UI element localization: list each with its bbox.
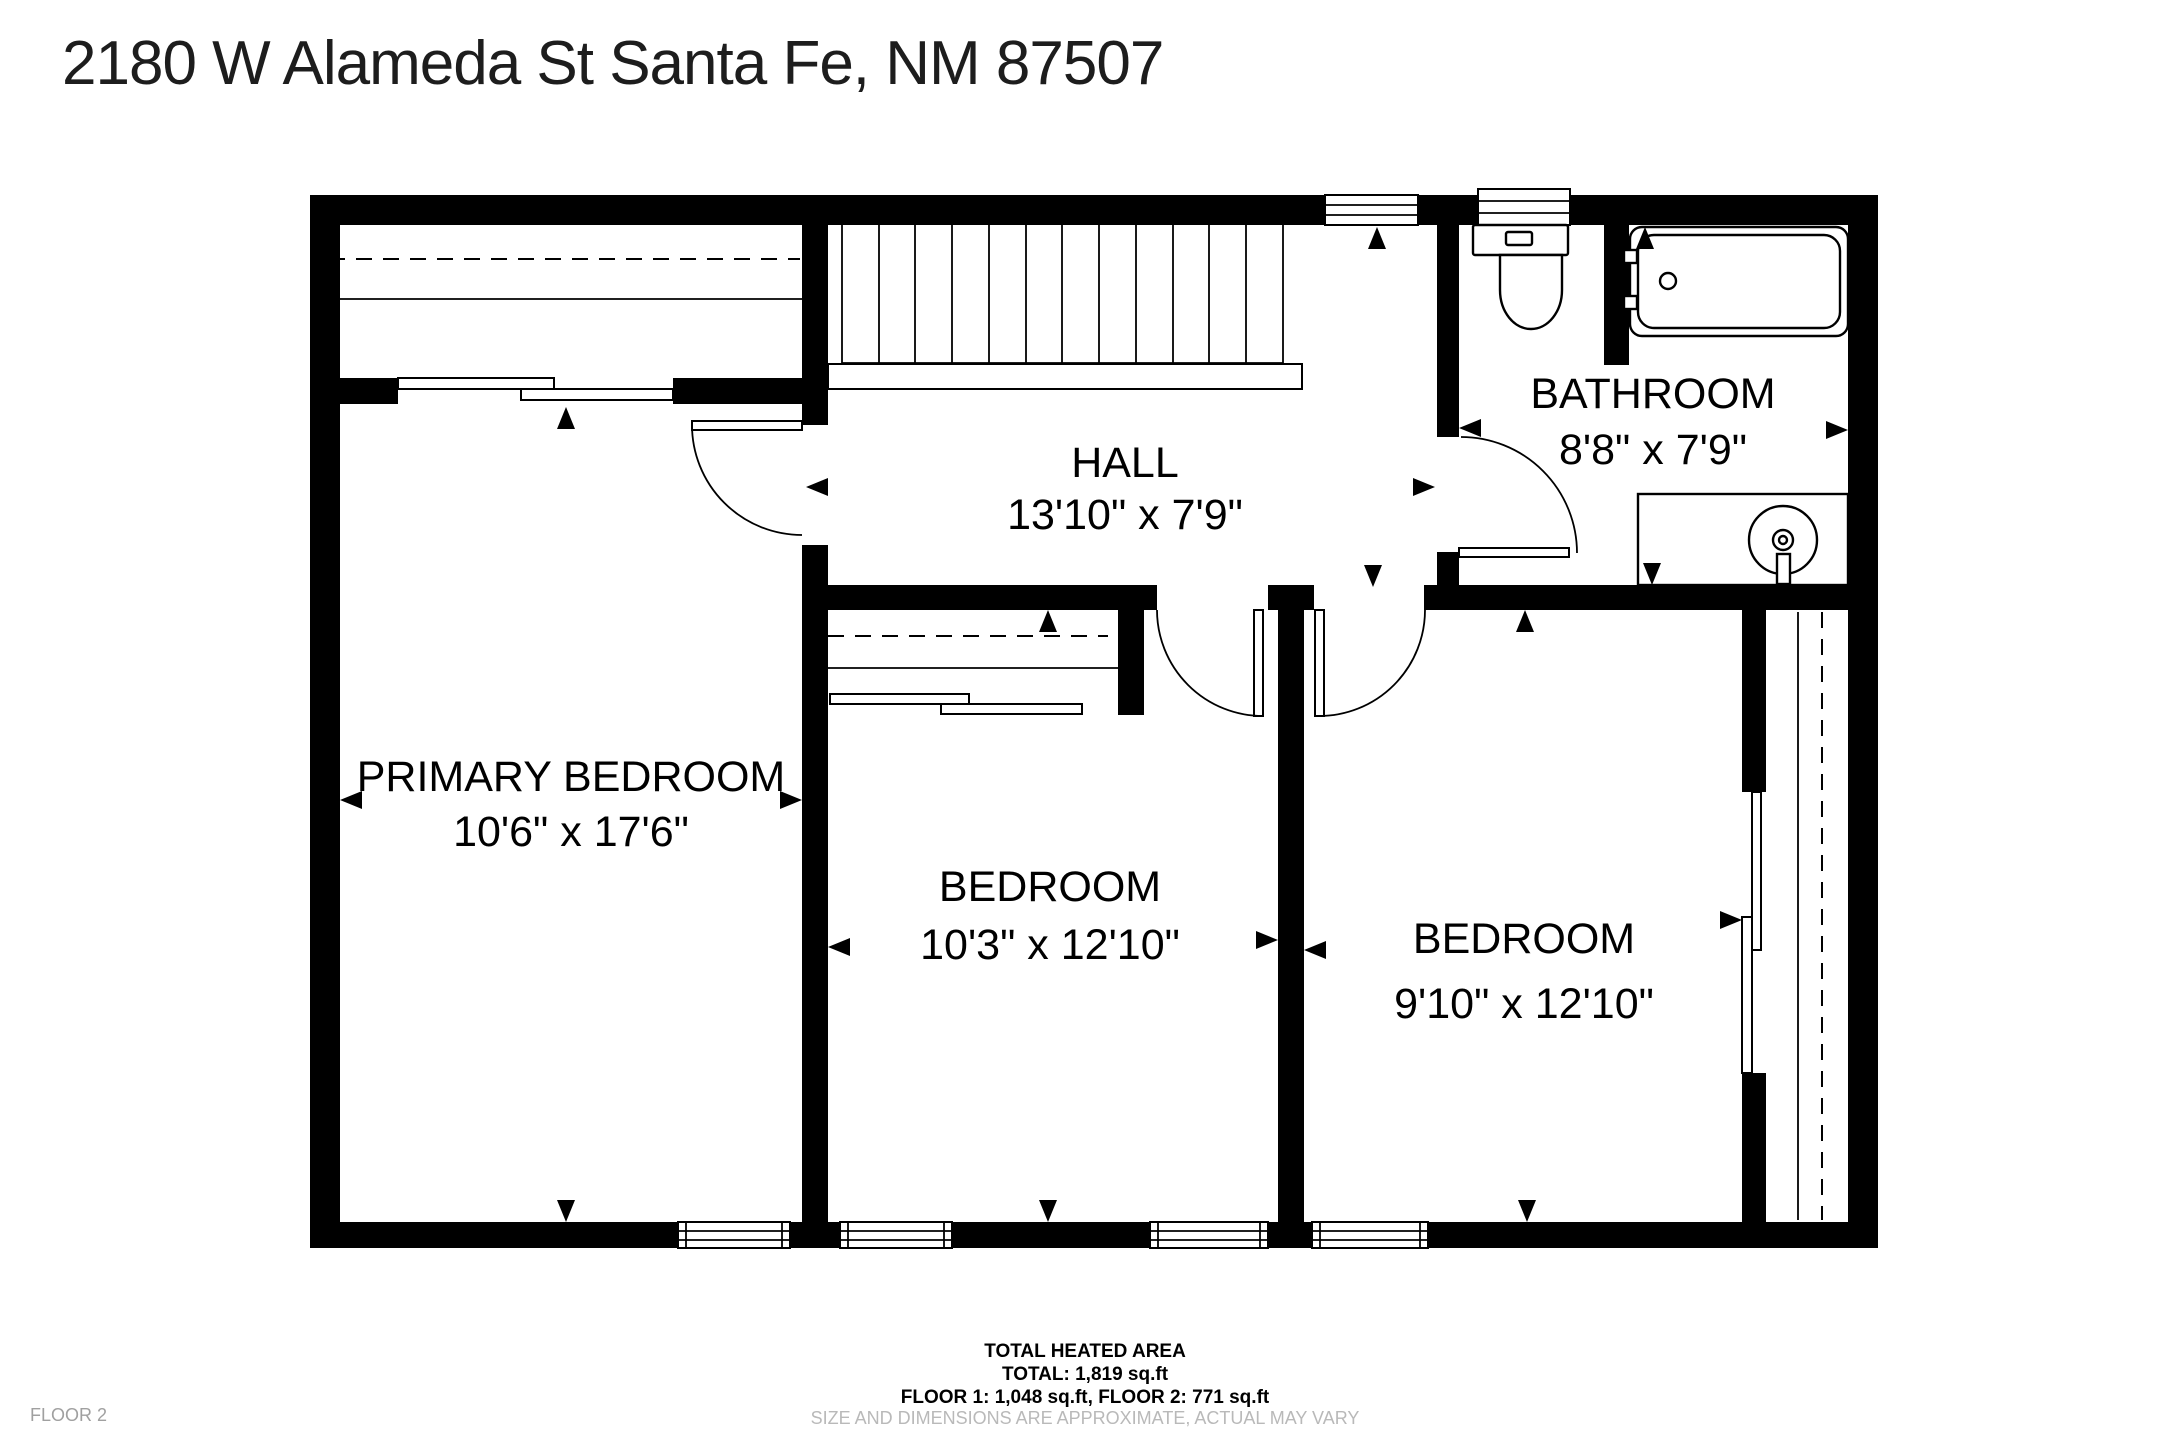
dimension-arrow-icon xyxy=(1516,610,1534,632)
floor-plan-page: 2180 W Alameda St Santa Fe, NM 87507 xyxy=(0,0,2173,1448)
footer-total-heated-area: TOTAL HEATED AREA xyxy=(984,1341,1186,1362)
sliding-door-icon xyxy=(398,378,554,389)
dimension-arrow-icon xyxy=(557,1200,575,1222)
dimension-arrow-icon xyxy=(1039,610,1057,632)
room-dims-primary-bedroom: 10'6" x 17'6" xyxy=(453,808,689,856)
dimension-arrow-icon xyxy=(1518,1200,1536,1222)
room-dims-bathroom: 8'8" x 7'9" xyxy=(1559,426,1747,474)
floor-plan-svg: 2180 W Alameda St Santa Fe, NM 87507 xyxy=(0,0,2173,1448)
window-icon-bedroom-right-bottom xyxy=(1312,1222,1428,1248)
sliding-door-icon xyxy=(1742,917,1752,1073)
door-swing-icon-bedroom-right xyxy=(1315,610,1425,716)
dimension-arrow-icon xyxy=(828,938,850,956)
dimension-arrow-icon xyxy=(1256,931,1278,949)
door-swing-icon-bedroom-mid xyxy=(1157,610,1263,716)
room-label-hall: HALL xyxy=(1071,439,1179,487)
room-labels: PRIMARY BEDROOM 10'6" x 17'6" HALL 13'10… xyxy=(357,370,1776,1028)
dimension-arrow-icon xyxy=(1720,911,1742,929)
room-label-primary-bedroom: PRIMARY BEDROOM xyxy=(357,753,786,801)
door-swing-icon-primary-bedroom xyxy=(692,421,802,535)
footer: TOTAL HEATED AREA TOTAL: 1,819 sq.ft FLO… xyxy=(811,1341,1360,1428)
window-icon-primary-bottom xyxy=(678,1222,790,1248)
dimension-arrow-icon xyxy=(806,478,828,496)
stair-railing xyxy=(828,364,1302,389)
room-dims-bedroom-right: 9'10" x 12'10" xyxy=(1394,980,1654,1028)
bedroom-mid-closet xyxy=(820,636,1118,714)
stairs-icon xyxy=(828,225,1302,389)
room-label-bedroom-right: BEDROOM xyxy=(1413,915,1635,963)
sink-icon xyxy=(1638,494,1848,585)
footer-disclaimer: SIZE AND DIMENSIONS ARE APPROXIMATE, ACT… xyxy=(811,1408,1360,1428)
floor-plan: PRIMARY BEDROOM 10'6" x 17'6" HALL 13'10… xyxy=(310,189,1878,1248)
window-icon-bedroom-mid-right-bottom xyxy=(1150,1222,1268,1248)
window-icon-bathroom-top xyxy=(1478,189,1570,225)
sliding-door-icon xyxy=(521,389,673,400)
window-icon-bedroom-mid-left-bottom xyxy=(840,1222,952,1248)
sliding-door-icon xyxy=(941,704,1082,714)
room-label-bathroom: BATHROOM xyxy=(1530,370,1775,418)
dimension-arrow-icon xyxy=(1413,478,1435,496)
dimension-arrow-icon xyxy=(1368,227,1386,249)
bathtub-icon xyxy=(1624,227,1848,336)
room-label-bedroom-mid: BEDROOM xyxy=(939,863,1161,911)
dimension-arrow-icon xyxy=(1304,941,1326,959)
dimension-arrow-icon xyxy=(1826,421,1848,439)
footer-floor-breakdown: FLOOR 1: 1,048 sq.ft, FLOOR 2: 771 sq.ft xyxy=(901,1387,1270,1408)
sliding-door-icon xyxy=(1752,792,1761,950)
walls xyxy=(310,195,1878,1248)
page-title: 2180 W Alameda St Santa Fe, NM 87507 xyxy=(62,29,1163,98)
window-icon-hall-top xyxy=(1325,195,1418,225)
dimension-arrow-icon xyxy=(1364,565,1382,587)
room-dims-hall: 13'10" x 7'9" xyxy=(1007,491,1243,539)
floor-label: FLOOR 2 xyxy=(30,1405,107,1425)
dimension-arrow-icon xyxy=(557,407,575,429)
dimension-arrow-icon xyxy=(1039,1200,1057,1222)
toilet-icon xyxy=(1473,225,1568,329)
footer-total: TOTAL: 1,819 sq.ft xyxy=(1002,1364,1169,1385)
dimension-arrow-icon xyxy=(1459,419,1481,437)
room-dims-bedroom-mid: 10'3" x 12'10" xyxy=(920,921,1180,969)
sliding-door-icon xyxy=(830,694,969,704)
